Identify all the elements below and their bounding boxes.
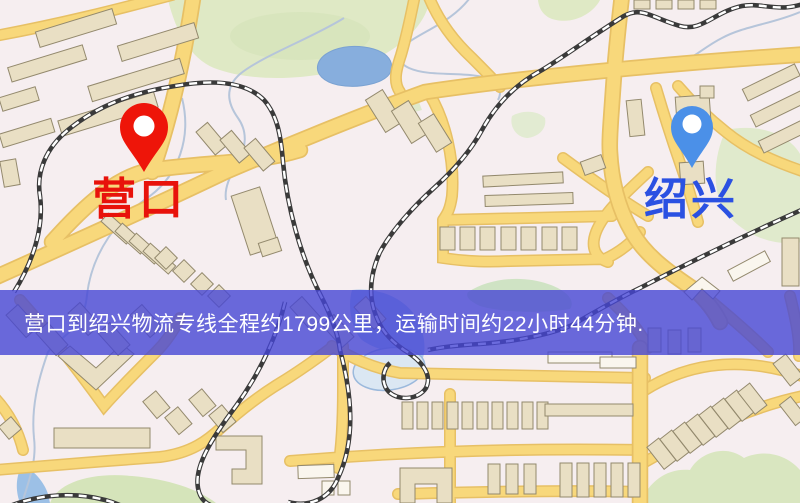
- route-info-text: 营口到绍兴物流专线全程约1799公里，运输时间约22小时44分钟.: [24, 308, 644, 338]
- route-info-banner: 营口到绍兴物流专线全程约1799公里，运输时间约22小时44分钟.: [0, 290, 800, 355]
- map-canvas[interactable]: 营口 绍兴 营口到绍兴物流专线全程约1799公里，运输时间约22小时44分钟.: [0, 0, 800, 503]
- map-svg: [0, 0, 800, 503]
